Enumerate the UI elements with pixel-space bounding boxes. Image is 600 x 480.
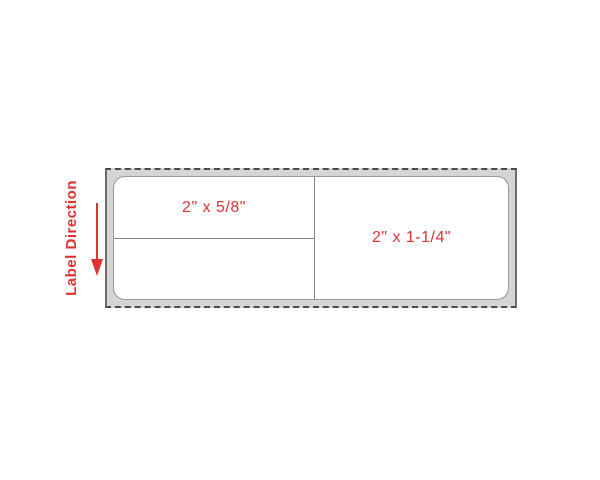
arrow-head [91,259,103,276]
top-left-cell-dimension: 2" x 5/8" [114,177,314,238]
liner-strip: 2" x 5/8" 2" x 1-1/4" [105,168,517,308]
label-direction-arrow-icon [91,203,103,276]
label-direction-caption: Label Direction [60,176,82,300]
horizontal-divider [114,238,314,239]
right-cell-dimension: 2" x 1-1/4" [315,177,508,299]
label-direction-text: Label Direction [63,180,80,296]
die-cut-label: 2" x 5/8" 2" x 1-1/4" [113,176,509,300]
arrow-shaft [96,203,98,260]
label-spec-diagram: Label Direction 2" x 5/8" 2" x 1-1/4" [0,0,600,480]
